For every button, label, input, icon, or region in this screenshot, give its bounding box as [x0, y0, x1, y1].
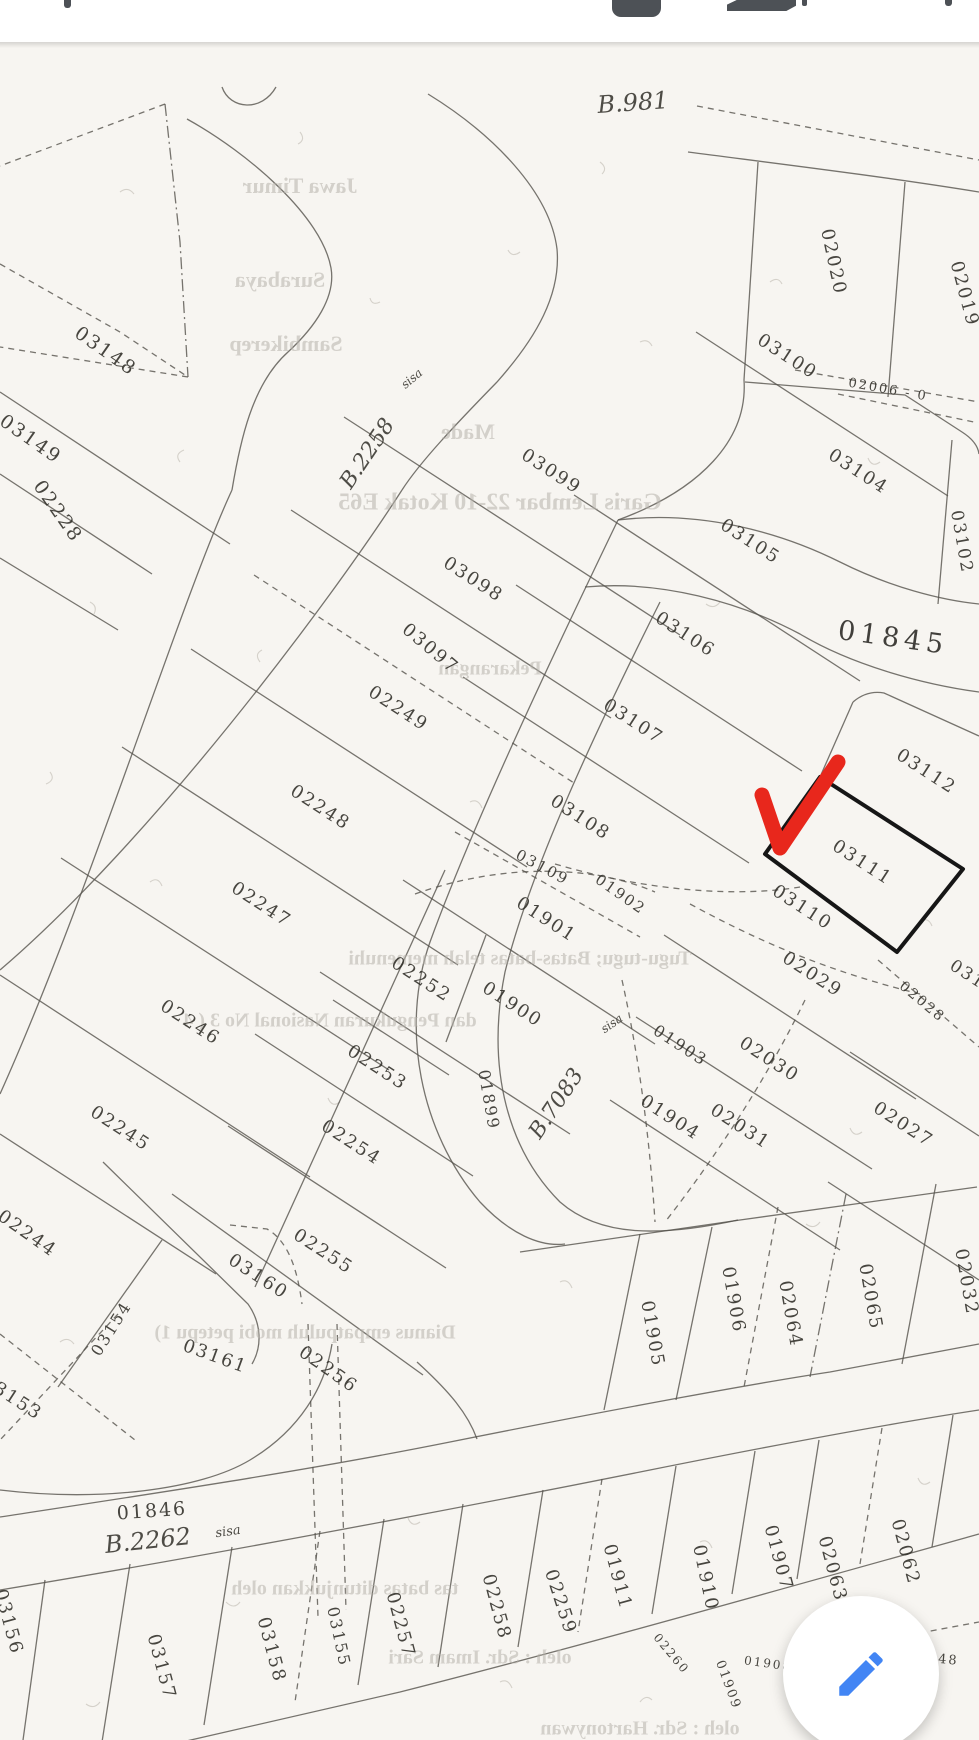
share-icon[interactable] [64, 0, 71, 8]
parcel-label: 02064 [774, 1279, 806, 1349]
parcel-label: 02020 [816, 227, 851, 297]
benchmark-label: sisa [598, 1011, 625, 1036]
parcel-label: 02245 [86, 1101, 154, 1155]
parcel-label: 02032 [950, 1247, 979, 1317]
parcel-label: 03098 [439, 552, 507, 606]
bleed-text: Made [441, 419, 495, 444]
parcel-label: 01899 [474, 1068, 503, 1131]
parcel-label: 01904 [636, 1090, 704, 1144]
parcel-label: 02248 [286, 780, 354, 834]
parcel-label: 02062 [887, 1517, 925, 1587]
app-screen: { "app": { "colors": { "accent_red": "#e… [0, 0, 979, 1740]
parcel-label: 02259 [540, 1567, 581, 1637]
bleed-text: Sambikerep [229, 331, 342, 356]
parcel-label: 01907 [760, 1523, 798, 1593]
parcel-label: 02260 [651, 1631, 693, 1677]
parcel-label: 01909 [712, 1658, 744, 1711]
parcel-label: 01901 [512, 892, 580, 946]
parcel-label: 03097 [398, 619, 463, 678]
parcel-label: 02006 - 0 [847, 376, 929, 405]
parcel-label: 03111 [828, 835, 896, 889]
parcel-label: 01903 [650, 1021, 711, 1070]
parcel-label: 03157 [143, 1632, 181, 1702]
bleed-text: Surabaya [235, 267, 325, 292]
bleed-text: dan Pengukuran Nasional No 3 ( 4 [183, 1010, 476, 1032]
parcel-label: 01902 [592, 870, 650, 918]
parcel-label: 01846 [116, 1498, 188, 1525]
parcel-label: 02029 [778, 947, 846, 1001]
parcel-label: 02244 [0, 1206, 61, 1262]
bleed-through-text-layer: Jawa TimurSurabayaSambikerepMadeGaris Le… [154, 173, 739, 1740]
parcel-label: 01905 [636, 1299, 668, 1369]
parcel-label: 03105 [716, 514, 784, 568]
benchmark-label: B.2258 [335, 414, 401, 494]
cadastral-map[interactable]: Jawa TimurSurabayaSambikerepMadeGaris Le… [0, 42, 979, 1740]
pencil-icon [832, 1645, 890, 1703]
benchmark-label: B.2262 [102, 1522, 192, 1559]
save-icon[interactable] [612, 0, 661, 17]
parcel-label: 02254 [317, 1115, 385, 1169]
parcel-label: 01845 [836, 615, 950, 661]
parcel-label: 01900 [478, 977, 546, 1031]
parcel-label: 03156 [0, 1587, 27, 1657]
parcel-label: 03160 [224, 1249, 292, 1303]
parcel-label: 02258 [478, 1572, 516, 1642]
parcel-label: 02030 [735, 1032, 803, 1086]
toolbar [0, 0, 979, 42]
benchmark-label: sisa [214, 1523, 241, 1541]
parcel-label: 02247 [227, 877, 295, 931]
bleed-text: Garis Lembar 22-10 Kotak E65 [338, 490, 662, 516]
parcel-label: 03106 [651, 607, 719, 661]
more-icon[interactable] [945, 0, 952, 6]
parcel-label: 03149 [0, 410, 66, 468]
parcel-label: 02028 [896, 978, 948, 1025]
bleed-text: oleh : Sdr. Hartonywan [540, 1718, 739, 1740]
parcel-label: 02027 [869, 1097, 937, 1151]
parcel-label: 02255 [289, 1224, 357, 1278]
parcel-label: 02256 [295, 1342, 362, 1398]
parcel-label: 02228 [29, 476, 87, 546]
parcel-label: 02257 [382, 1590, 420, 1660]
parcel-label: 03112 [892, 744, 960, 798]
parcel-label: 02019 [946, 259, 979, 329]
print-icon[interactable] [727, 0, 796, 11]
toolbar-shadow [0, 42, 979, 48]
parcel-label: 03148 [70, 322, 140, 380]
cadastral-map-viewport[interactable]: Jawa TimurSurabayaSambikerepMadeGaris Le… [0, 42, 979, 1740]
print-icon-dot [802, 0, 807, 6]
benchmark-label: B.981 [595, 86, 669, 119]
red-arrow-marker [762, 762, 838, 848]
parcel-label: 02249 [364, 681, 432, 735]
parcel-label: 01911 [599, 1542, 637, 1612]
bleed-text: Jawa Timur [242, 173, 357, 198]
parcel-label: 02031 [706, 1099, 774, 1153]
parcel-label: 03113 [946, 956, 979, 1008]
benchmark-label: B.7083 [524, 1064, 590, 1144]
parcel-label: 03110 [768, 880, 836, 934]
edit-fab[interactable] [783, 1596, 939, 1740]
parcel-label: 03154 [87, 1298, 135, 1360]
parcel-label: 03108 [546, 790, 614, 844]
parcel-label: 02063 [814, 1534, 852, 1604]
parcel-label: 01906 [717, 1265, 749, 1335]
benchmark-label: sisa [398, 366, 425, 392]
parcel-label: 03107 [599, 694, 667, 748]
parcel-label: 03102 [946, 509, 977, 576]
bleed-text: tas batas ditunjukkan oleh [231, 1578, 458, 1600]
parcel-label: 03158 [253, 1615, 291, 1685]
parcel-label: 01910 [688, 1543, 723, 1613]
parcel-label: 02065 [854, 1262, 886, 1332]
parcel-label: 03155 [323, 1605, 354, 1669]
parcel-label: 02253 [343, 1040, 411, 1094]
